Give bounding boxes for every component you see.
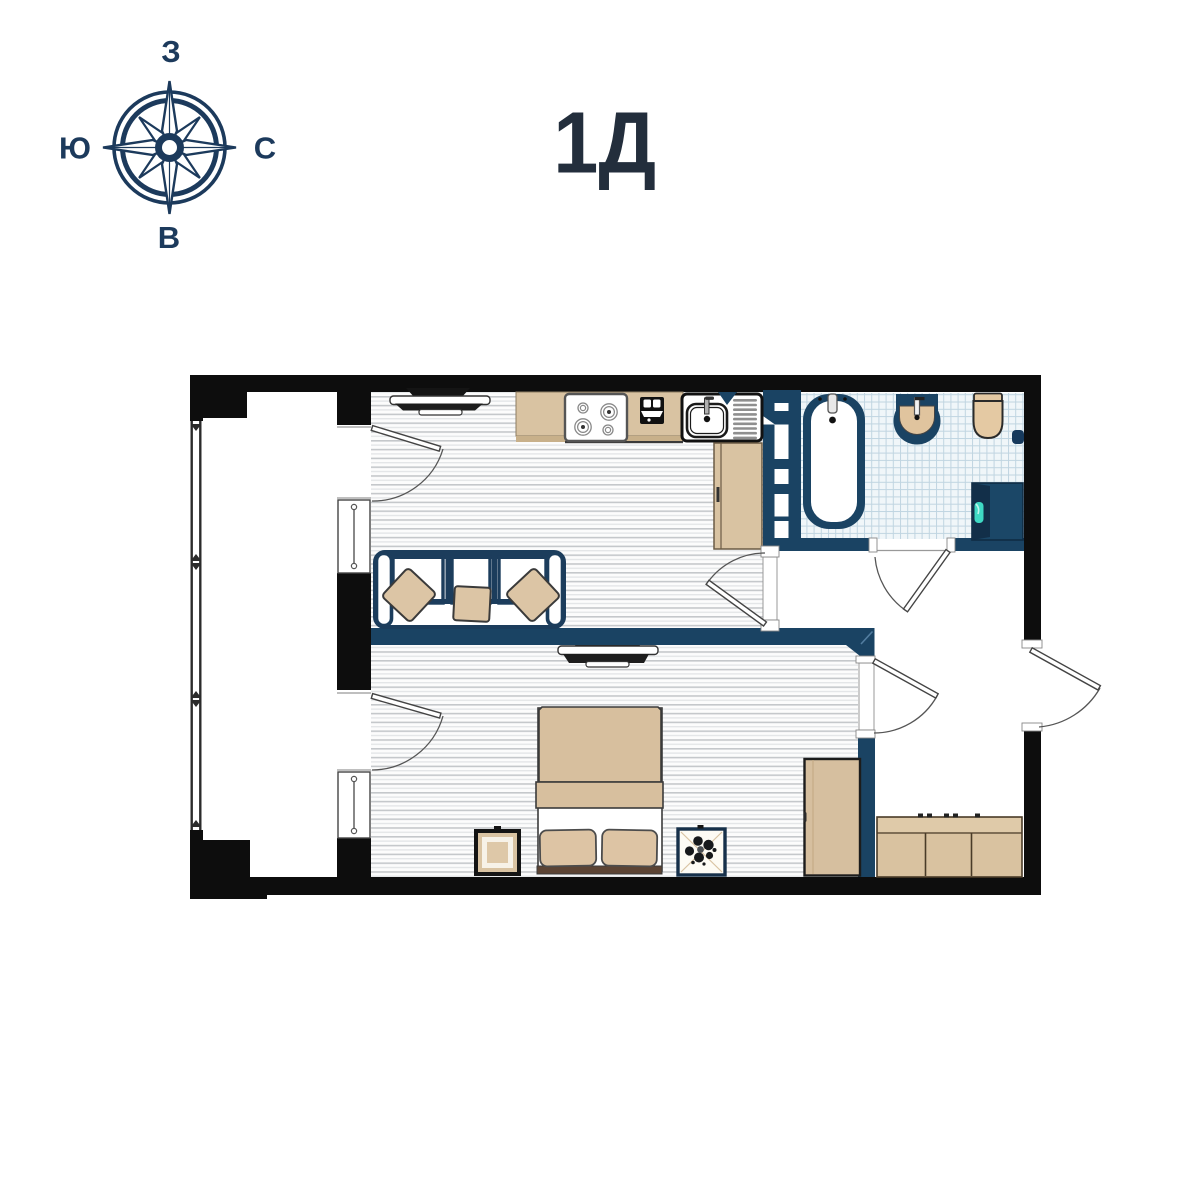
svg-text:С: С [254,131,276,166]
svg-text:Ю: Ю [59,131,91,166]
svg-text:В: В [158,220,180,255]
svg-text:З: З [161,34,180,69]
svg-text:1Д: 1Д [553,94,656,191]
